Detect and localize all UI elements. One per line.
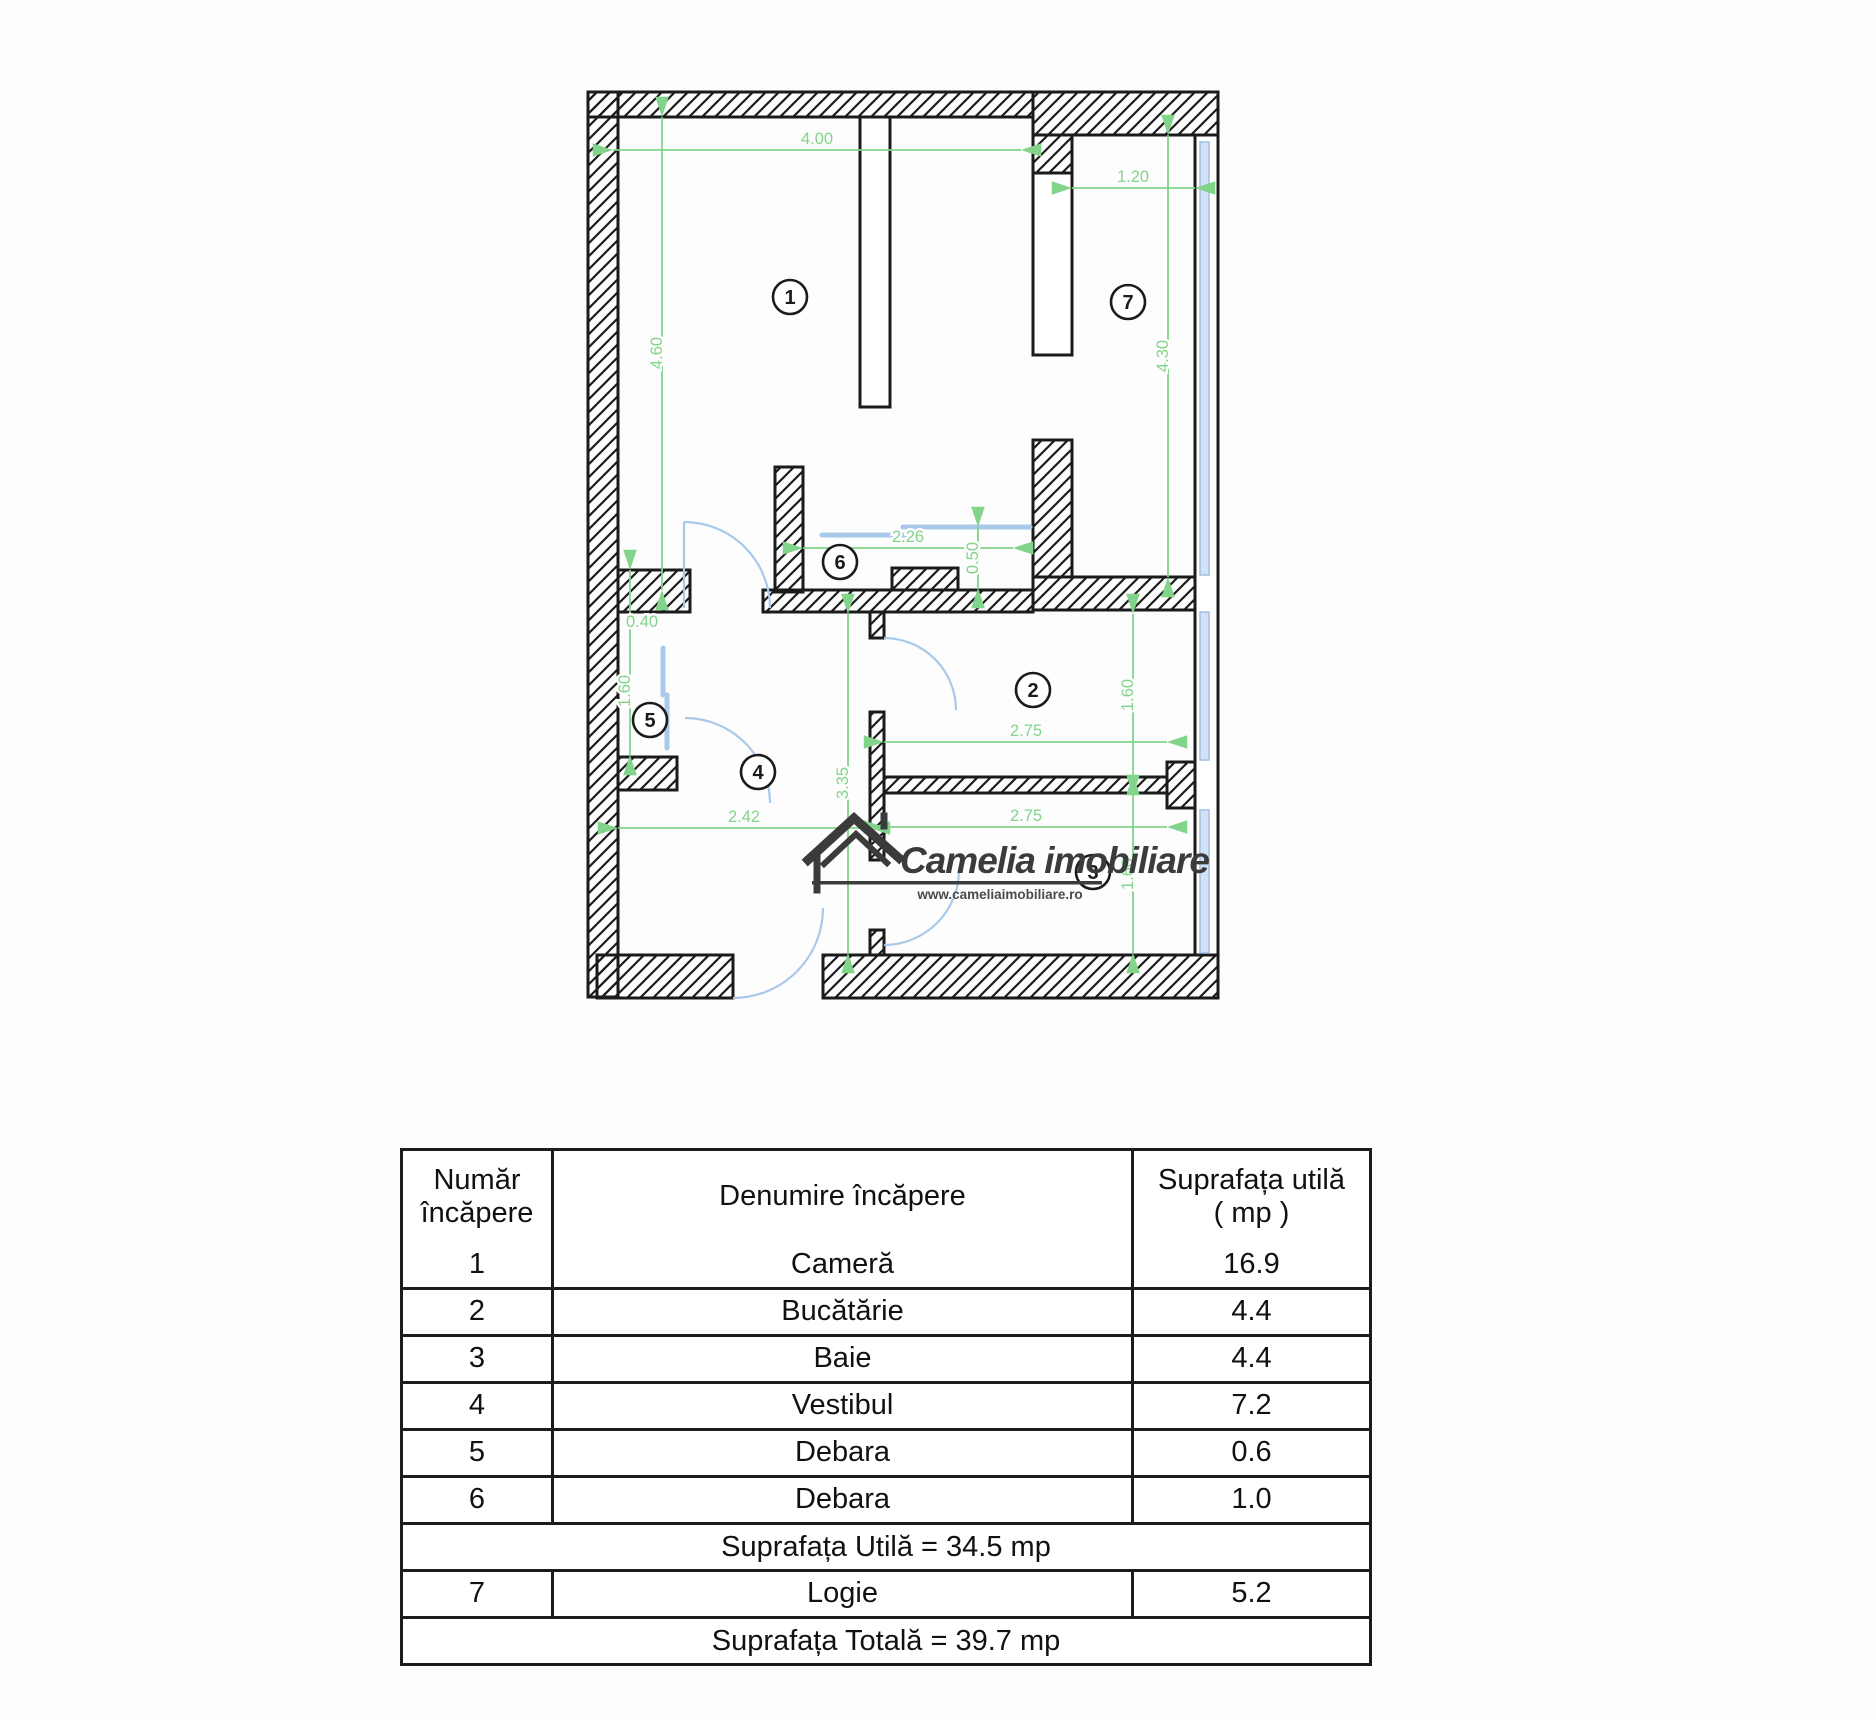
room-area-cell: 7.2	[1131, 1384, 1369, 1428]
room-area-cell: 0.6	[1131, 1431, 1369, 1475]
kitchen-window	[1200, 612, 1209, 760]
room-name-cell: Debara	[551, 1478, 1131, 1522]
table-header-row: Număr încăpere Denumire încăpere Suprafa…	[403, 1151, 1369, 1243]
area-table: Număr încăpere Denumire încăpere Suprafa…	[400, 1148, 1372, 1666]
door-arc-entrance	[733, 908, 823, 998]
door-arc-kitchen	[884, 638, 956, 710]
room-name-cell: Logie	[551, 1572, 1131, 1616]
dimension-annotations: 4.004.601.204.302.260.500.401.602.423.35…	[613, 117, 1195, 953]
total-row: Suprafața Totală = 39.7 mp	[403, 1616, 1369, 1663]
floor-plan-drawing: 4.004.601.204.302.260.500.401.602.423.35…	[470, 50, 1250, 1010]
room-number-label: 4	[752, 762, 764, 784]
room-number-label: 2	[1027, 680, 1038, 702]
logo-text: Camelia imobiliare	[900, 840, 1209, 881]
room-area-cell: 4.4	[1131, 1290, 1369, 1334]
header-area-line2: ( mp )	[1214, 1197, 1290, 1230]
dimension-label: 1.20	[1117, 168, 1149, 186]
room-number-cell: 3	[403, 1337, 551, 1381]
bath-window	[1200, 810, 1209, 953]
table-body: 1Cameră16.92Bucătărie4.43Baie4.44Vestibu…	[403, 1243, 1369, 1522]
room-number-cell: 4	[403, 1384, 551, 1428]
room-number-cell: 5	[403, 1431, 551, 1475]
table-row: 2Bucătărie4.4	[403, 1287, 1369, 1334]
table-row: 3Baie4.4	[403, 1334, 1369, 1381]
logo-url: www.cameliaimobiliare.ro	[916, 887, 1082, 902]
room-number-label: 5	[644, 710, 655, 732]
room-area-cell: 4.4	[1131, 1337, 1369, 1381]
room-number-label: 1	[784, 287, 795, 309]
header-area: Suprafața utilă ( mp )	[1131, 1151, 1369, 1243]
table-row: 4Vestibul7.2	[403, 1381, 1369, 1428]
room-area-cell: 5.2	[1131, 1572, 1369, 1616]
room-name-cell: Debara	[551, 1431, 1131, 1475]
table-row: 6Debara1.0	[403, 1475, 1369, 1522]
logia-window	[1200, 142, 1209, 575]
windows	[1200, 142, 1209, 953]
room-name-cell: Bucătărie	[551, 1290, 1131, 1334]
room-area-cell: 16.9	[1131, 1243, 1369, 1287]
table-row: 5Debara0.6	[403, 1428, 1369, 1475]
header-area-line1: Suprafața utilă	[1158, 1164, 1345, 1197]
room-area-cell: 1.0	[1131, 1478, 1369, 1522]
dimension-label: 3.35	[834, 767, 852, 799]
dimension-label: 4.60	[648, 337, 666, 369]
dimension-label: 4.30	[1154, 340, 1172, 372]
room-number-cell: 1	[403, 1243, 551, 1287]
dimension-label: 2.75	[1010, 807, 1042, 825]
agency-logo: Camelia imobiliare www.cameliaimobiliare…	[808, 816, 1209, 902]
room-name-cell: Vestibul	[551, 1384, 1131, 1428]
header-room-number: Număr încăpere	[403, 1151, 551, 1243]
dimension-label: 2.26	[892, 528, 924, 546]
dimension-label: 0.50	[964, 542, 982, 574]
table-row: 1Cameră16.9	[403, 1243, 1369, 1287]
room-number-label: 6	[834, 552, 845, 574]
floor-plan-page: 4.004.601.204.302.260.500.401.602.423.35…	[0, 0, 1876, 1720]
logo-underline	[812, 881, 1102, 885]
dimension-label: 2.75	[1010, 722, 1042, 740]
dimension-label: 1.60	[616, 675, 634, 707]
room-number-cell: 6	[403, 1478, 551, 1522]
dimension-label: 1.60	[1119, 679, 1137, 711]
dimension-label: 2.42	[728, 808, 760, 826]
room-name-cell: Cameră	[551, 1243, 1131, 1287]
room-number-cell: 2	[403, 1290, 551, 1334]
room-name-cell: Baie	[551, 1337, 1131, 1381]
total-label: Suprafața Totală = 39.7 mp	[403, 1619, 1369, 1663]
dimension-label: 0.40	[626, 613, 658, 631]
table-row-logie: 7 Logie 5.2	[403, 1569, 1369, 1616]
subtotal-label: Suprafața Utilă = 34.5 mp	[403, 1525, 1369, 1569]
dimension-label: 4.00	[801, 130, 833, 148]
header-room-name: Denumire încăpere	[551, 1151, 1131, 1243]
subtotal-row: Suprafața Utilă = 34.5 mp	[403, 1522, 1369, 1569]
room-number-cell: 7	[403, 1572, 551, 1616]
door-arc-room1	[684, 522, 770, 608]
room-number-label: 7	[1122, 292, 1133, 314]
